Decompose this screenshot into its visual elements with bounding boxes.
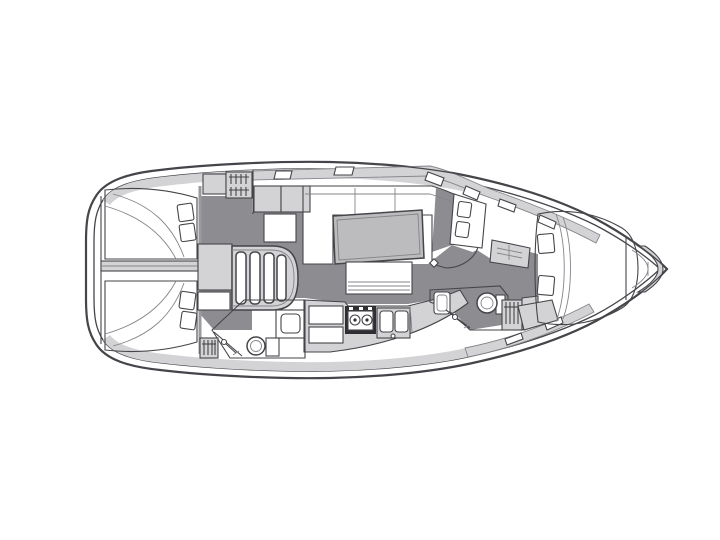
galley-drawer xyxy=(309,327,343,343)
lower-box xyxy=(198,292,230,310)
cistern xyxy=(266,338,279,356)
shower-head xyxy=(222,340,227,345)
basin xyxy=(380,311,393,332)
pillow xyxy=(177,203,194,222)
cushion xyxy=(455,221,470,238)
galley-drawer xyxy=(309,306,343,324)
cabinet xyxy=(254,186,281,212)
hanging-locker-icon xyxy=(200,338,218,358)
pillow xyxy=(537,233,555,253)
sink-cabinet xyxy=(276,310,304,338)
salon-seat xyxy=(264,214,296,242)
floor-plan-drawing xyxy=(0,0,720,540)
wardrobe-body xyxy=(226,172,252,198)
knob xyxy=(349,307,353,310)
yacht-floor-plan xyxy=(0,0,720,540)
locker-cabinet xyxy=(203,174,226,194)
pillow xyxy=(537,275,555,295)
toilet-icon xyxy=(477,293,505,314)
knob xyxy=(359,307,363,310)
wardrobe xyxy=(226,172,252,198)
sink-icon xyxy=(377,308,410,338)
bench-seat xyxy=(346,262,412,294)
step xyxy=(277,255,286,301)
burner-center xyxy=(353,318,356,321)
settee-back-cabinets xyxy=(254,186,310,212)
pillow xyxy=(179,223,196,242)
stove-icon xyxy=(345,306,376,334)
bowl xyxy=(477,293,497,313)
hatch xyxy=(274,171,292,179)
faucet xyxy=(391,334,395,338)
locker xyxy=(502,300,522,330)
step xyxy=(250,252,260,304)
step xyxy=(264,253,274,303)
hatch xyxy=(334,167,354,175)
engine-box xyxy=(198,244,232,290)
step xyxy=(236,252,246,304)
hanging-locker-icon xyxy=(502,300,522,330)
cabin-seats xyxy=(450,194,486,248)
basin xyxy=(281,314,300,333)
shower-head xyxy=(453,315,458,320)
cabinet xyxy=(281,186,310,212)
pillow xyxy=(180,311,197,330)
cushion xyxy=(457,201,472,218)
burner-center xyxy=(365,318,368,321)
knob xyxy=(368,307,372,310)
aft-cabin-divider xyxy=(101,261,198,271)
salon-table xyxy=(333,210,424,264)
bowl xyxy=(247,337,265,355)
basin xyxy=(395,311,408,332)
pillow xyxy=(179,291,196,310)
bench xyxy=(346,262,412,294)
